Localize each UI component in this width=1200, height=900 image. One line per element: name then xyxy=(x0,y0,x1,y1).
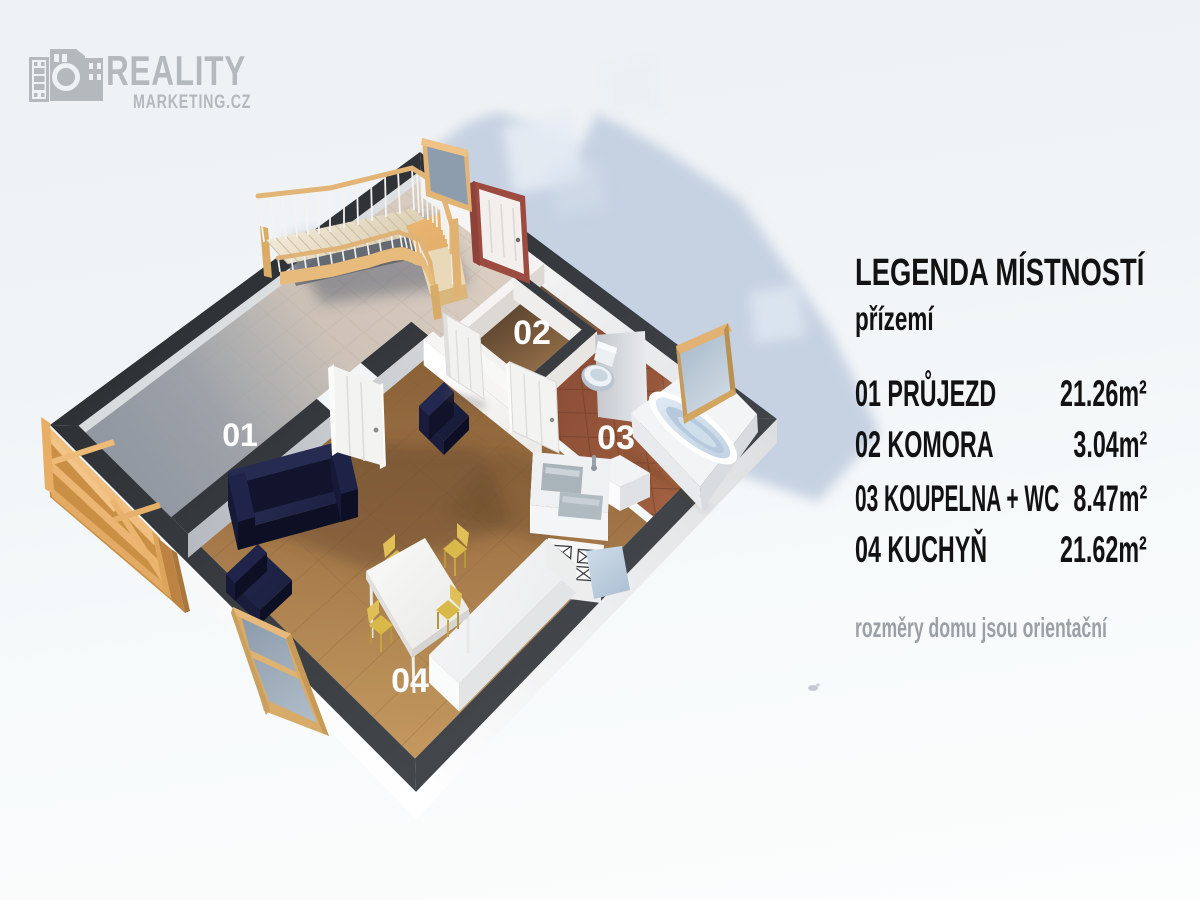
svg-text:02: 02 xyxy=(513,314,551,352)
svg-text:03: 03 xyxy=(597,419,635,457)
svg-text:01: 01 xyxy=(222,417,258,453)
svg-text:04: 04 xyxy=(391,662,429,700)
